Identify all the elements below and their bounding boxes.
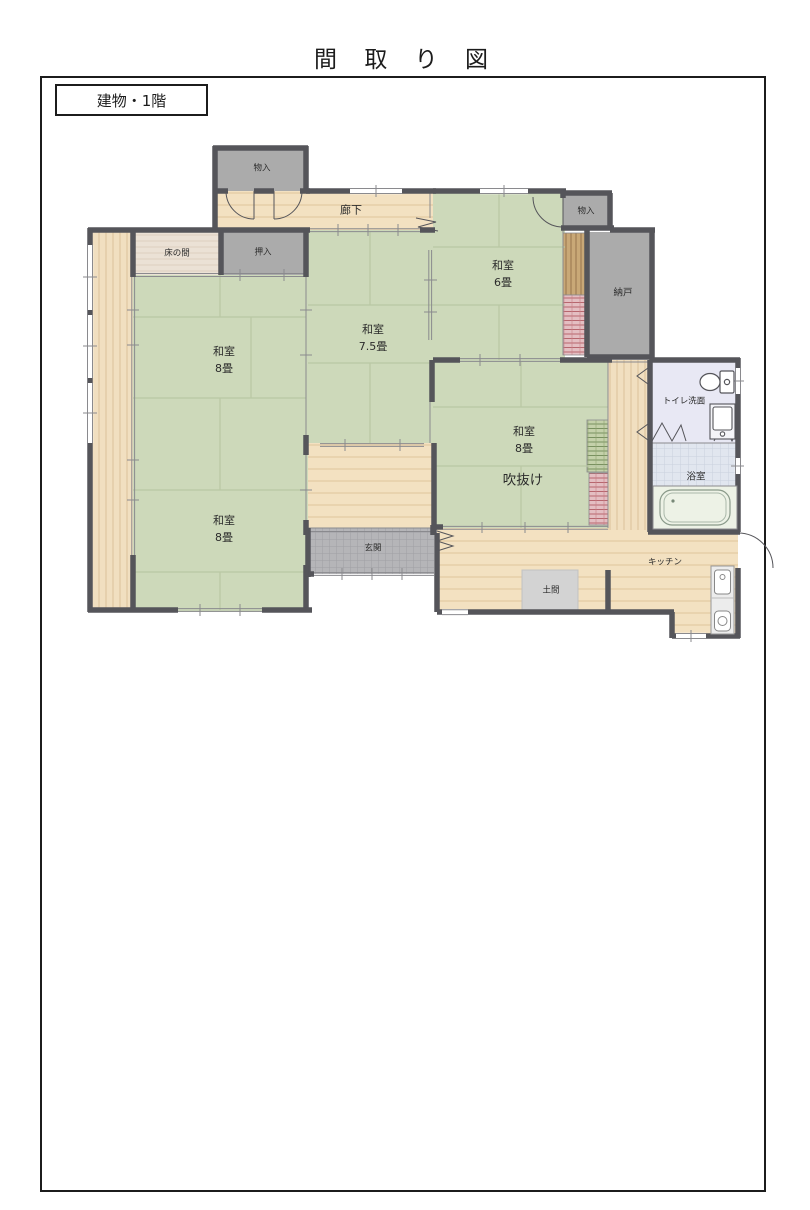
label-genkan: 玄関: [364, 542, 381, 555]
washbasin-icon: [710, 404, 735, 439]
floor-areas: [88, 148, 738, 636]
label-washitsu-nw-size: 8畳: [213, 360, 235, 377]
label-washitsu-nw-name: 和室: [213, 343, 235, 360]
label-washitsu-center-name: 和室: [359, 321, 388, 338]
label-storage-top: 物入: [253, 162, 270, 175]
kitchen-sink-icon: [715, 570, 731, 594]
floor-plan-page: 間 取 り 図 建物・1階: [0, 0, 810, 1210]
label-toilet: トイレ洗面: [663, 395, 706, 408]
label-washitsu-center: 和室 7.5畳: [359, 321, 388, 355]
label-washitsu-ne-size: 6畳: [492, 274, 514, 291]
label-washitsu-sw: 和室 8畳: [213, 512, 235, 546]
label-washitsu-sw-size: 8畳: [213, 529, 235, 546]
label-washitsu-center-size: 7.5畳: [359, 338, 388, 355]
label-washitsu-e: 和室 8畳: [513, 423, 535, 457]
label-kitchen: キッチン: [648, 556, 682, 569]
label-washitsu-e-name: 和室: [513, 423, 535, 440]
label-washitsu-e-size: 8畳: [513, 440, 535, 457]
floor-plan-drawing: [0, 0, 810, 1210]
hall-east: [608, 360, 650, 532]
stair-landing-wood: [563, 233, 587, 295]
kitchen-back-door: [738, 533, 773, 568]
stair-steps-pink-upper: [563, 295, 587, 355]
label-tokonoma: 床の間: [164, 247, 190, 260]
kitchen-stove-icon: [715, 611, 731, 631]
label-washitsu-ne: 和室 6畳: [492, 257, 514, 291]
label-storage-right: 物入: [577, 205, 594, 218]
kitchen-counter: [711, 566, 734, 634]
label-doma: 土間: [542, 584, 559, 597]
label-washitsu-ne-name: 和室: [492, 257, 514, 274]
bathtub-icon: [653, 486, 737, 529]
stair-steps-pink-lower: [589, 473, 608, 525]
label-oshiire: 押入: [254, 246, 271, 259]
label-washitsu-sw-name: 和室: [213, 512, 235, 529]
label-corridor: 廊下: [340, 201, 362, 218]
label-washitsu-nw: 和室 8畳: [213, 343, 235, 377]
room-corridor: [215, 189, 435, 232]
room-engawa-west: [88, 228, 133, 612]
label-nando: 納戸: [613, 287, 632, 302]
label-bath: 浴室: [686, 471, 705, 486]
label-atrium: 吹抜け: [503, 471, 544, 492]
stair-steps-green: [587, 420, 608, 472]
hall-south: [308, 443, 434, 528]
